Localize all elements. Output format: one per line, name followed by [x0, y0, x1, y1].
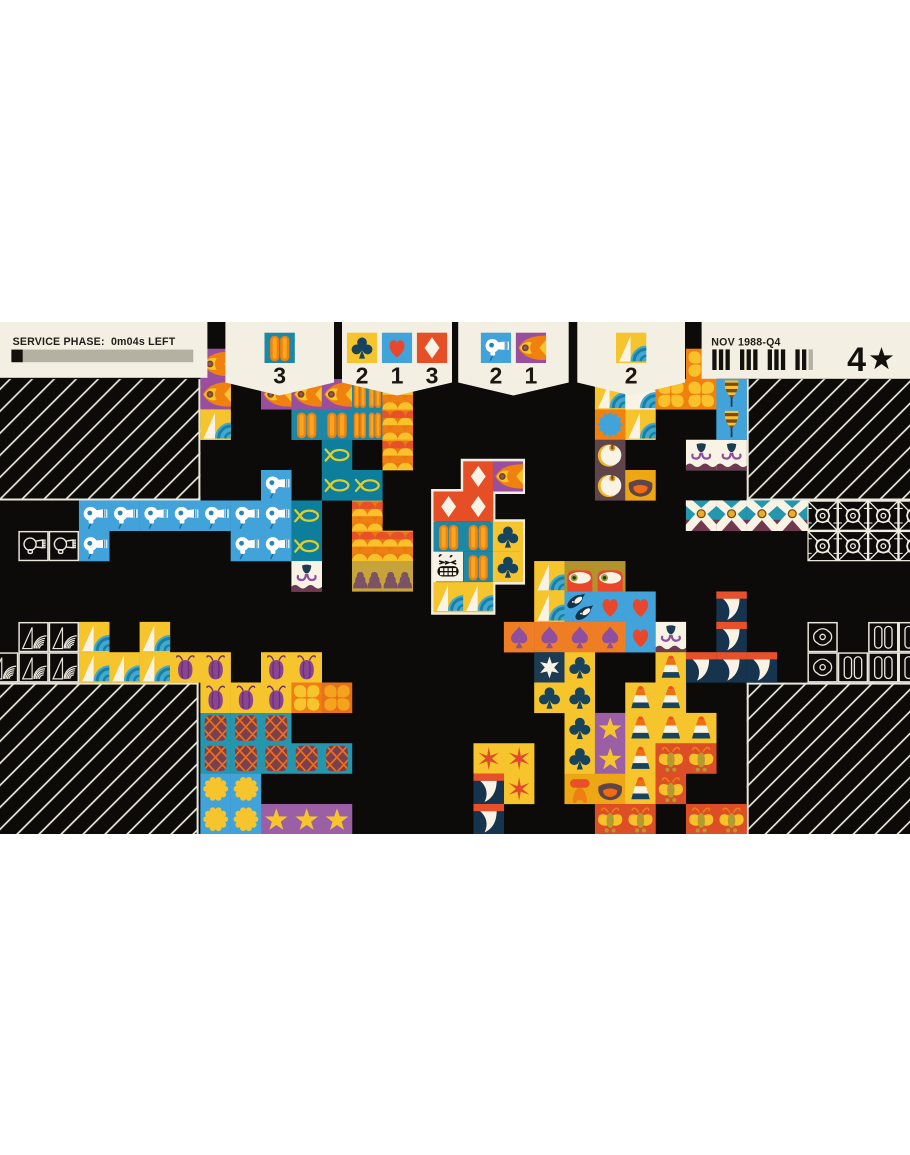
svg-text:2: 2 — [625, 362, 638, 388]
svg-text:2: 2 — [356, 362, 369, 388]
svg-text:3: 3 — [426, 362, 439, 388]
svg-text:1: 1 — [525, 362, 538, 388]
svg-text:3: 3 — [273, 362, 286, 388]
svg-text:1: 1 — [391, 362, 404, 388]
svg-text:SERVICE PHASE: 0m04s LEFT: SERVICE PHASE: 0m04s LEFT — [13, 336, 176, 348]
svg-text:4: 4 — [847, 341, 866, 379]
svg-text:2: 2 — [490, 362, 503, 388]
svg-text:NOV 1988-Q4: NOV 1988-Q4 — [711, 336, 780, 348]
